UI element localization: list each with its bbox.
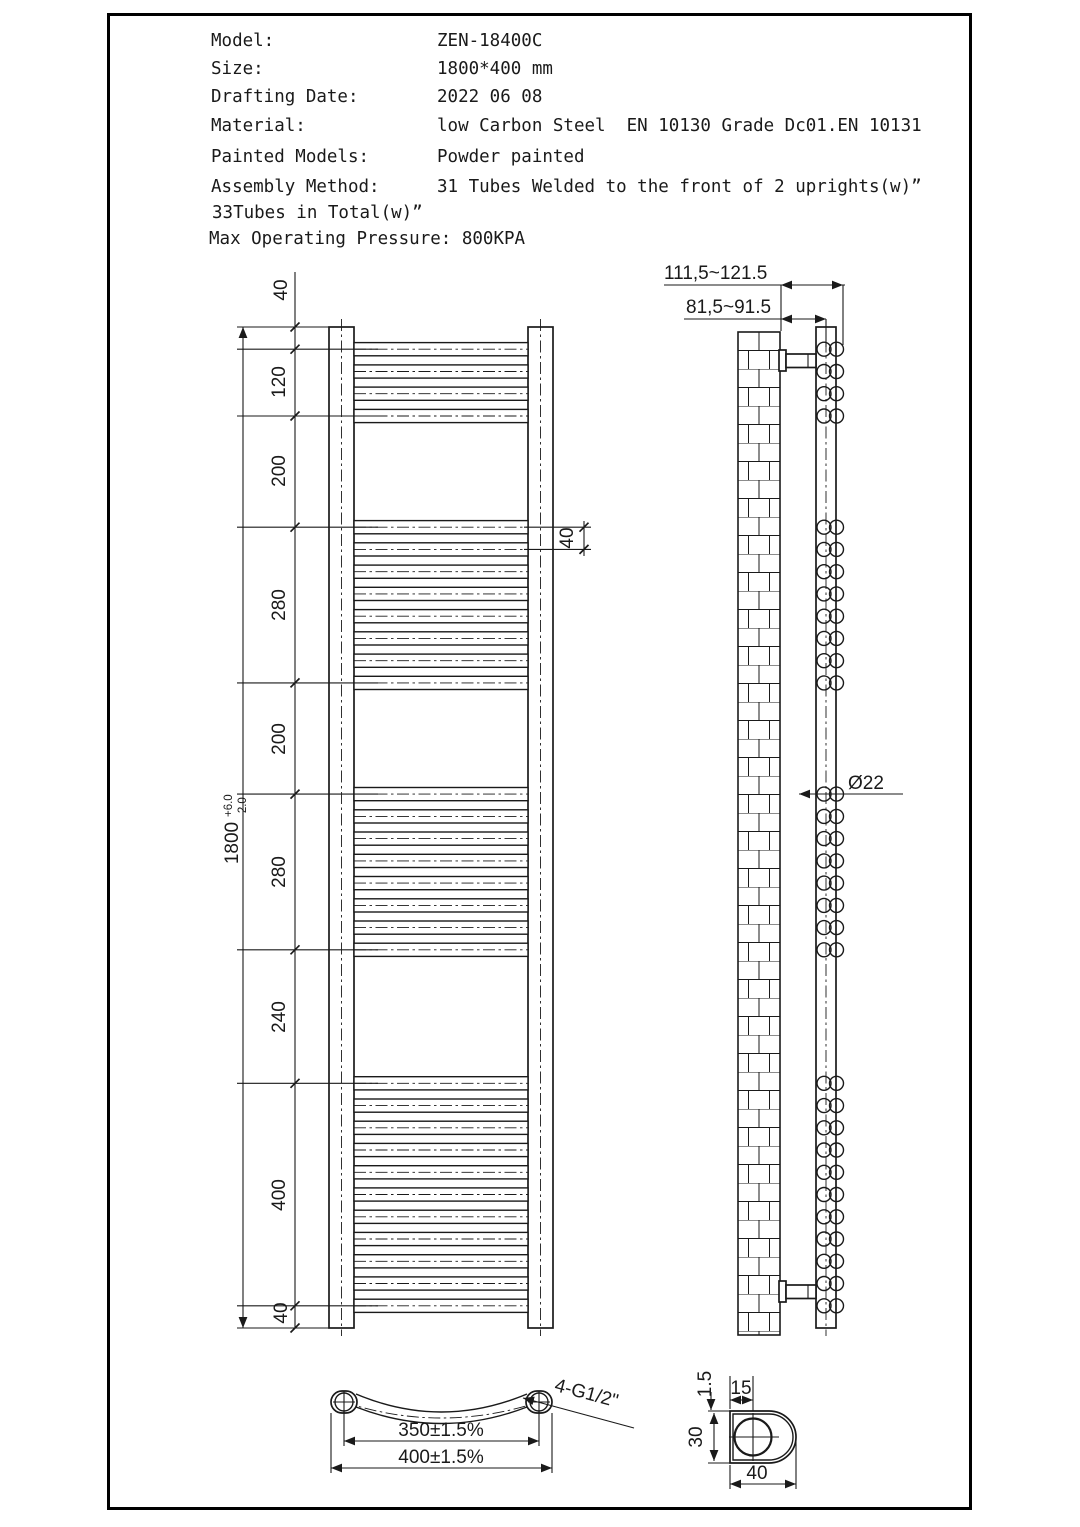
dim-rail-centers: 350±1.5% bbox=[398, 1420, 484, 1441]
spec-value-date: 2022 06 08 bbox=[437, 87, 542, 107]
spec-value-material: low Carbon Steel EN 10130 Grade Dc01.EN … bbox=[437, 116, 922, 136]
dim-wall-thickness: 1.5 bbox=[695, 1371, 716, 1397]
dim-top-40: 40 bbox=[271, 279, 292, 300]
dim-section-depth: 30 bbox=[686, 1426, 707, 1447]
bottom-dimensions: 350±1.5% 400±1.5% 4-G1/2" bbox=[331, 1375, 634, 1473]
spec-label-material: Material: bbox=[211, 116, 306, 136]
dim-tube-diameter: Ø22 bbox=[848, 773, 884, 794]
side-dimensions: 111,5~121.5 81,5~91.5 Ø22 bbox=[664, 263, 903, 794]
dim-400: 400 bbox=[269, 1179, 290, 1211]
bottom-view: 350±1.5% 400±1.5% 4-G1/2" bbox=[331, 1375, 634, 1473]
front-view: 40 120 200 280 200 280 240 400 40 1800 +… bbox=[222, 272, 591, 1336]
spec-label-model: Model: bbox=[211, 31, 274, 51]
rail-centerline bbox=[344, 1402, 539, 1418]
front-tubes bbox=[354, 343, 528, 1313]
spec-value-size: 1800*400 mm bbox=[437, 59, 553, 79]
spec-label-date: Drafting Date: bbox=[211, 87, 359, 107]
spec-line-tubes-total: 33Tubes in Total(w)” bbox=[212, 203, 423, 223]
rail-top-edge bbox=[356, 1394, 527, 1412]
chain-extension-lines bbox=[237, 323, 378, 1333]
dim-280-a: 280 bbox=[269, 589, 290, 621]
bottom-bracket bbox=[779, 1281, 816, 1302]
spec-header: Model: ZEN-18400C Size: 1800*400 mm Draf… bbox=[209, 31, 922, 249]
dim-280-b: 280 bbox=[269, 856, 290, 888]
dim-overall-1800: 1800 bbox=[222, 822, 243, 864]
dim-240: 240 bbox=[269, 1001, 290, 1033]
dim-pitch-40: 40 bbox=[557, 527, 578, 548]
spec-value-painted: Powder painted bbox=[437, 147, 585, 167]
left-end-cap bbox=[331, 1391, 357, 1413]
spec-value-model: ZEN-18400C bbox=[437, 31, 542, 51]
dim-120: 120 bbox=[269, 366, 290, 398]
dim-hole-offset: 15 bbox=[730, 1378, 751, 1399]
technical-drawing: Model: ZEN-18400C Size: 1800*400 mm Draf… bbox=[0, 0, 1080, 1527]
spec-label-assembly: Assembly Method: bbox=[211, 177, 380, 197]
spec-value-assembly: 31 Tubes Welded to the front of 2 uprigh… bbox=[437, 177, 922, 197]
spec-line-max-pressure: Max Operating Pressure: 800KPA bbox=[209, 229, 526, 249]
dim-section-width: 40 bbox=[746, 1463, 767, 1484]
dim-overall-tol-minus: -2.0 bbox=[237, 797, 249, 817]
dim-overall-tol-plus: +6.0 bbox=[223, 794, 235, 817]
spec-label-size: Size: bbox=[211, 59, 264, 79]
dim-wall-to-front: 111,5~121.5 bbox=[664, 263, 767, 284]
side-view: 111,5~121.5 81,5~91.5 Ø22 bbox=[664, 263, 903, 1336]
wall-section bbox=[738, 332, 780, 1335]
dim-200-b: 200 bbox=[269, 723, 290, 755]
dim-wall-to-center: 81,5~91.5 bbox=[686, 297, 771, 318]
section-detail: 1.5 15 30 40 bbox=[686, 1371, 796, 1489]
dim-rail-overall: 400±1.5% bbox=[398, 1447, 484, 1468]
top-bracket bbox=[779, 350, 816, 371]
dim-200-a: 200 bbox=[269, 455, 290, 487]
dim-bottom-40: 40 bbox=[271, 1302, 292, 1323]
spec-label-painted: Painted Models: bbox=[211, 147, 369, 167]
dim-thread-label: 4-G1/2" bbox=[552, 1375, 620, 1412]
drawing-page: Model: ZEN-18400C Size: 1800*400 mm Draf… bbox=[0, 0, 1080, 1527]
